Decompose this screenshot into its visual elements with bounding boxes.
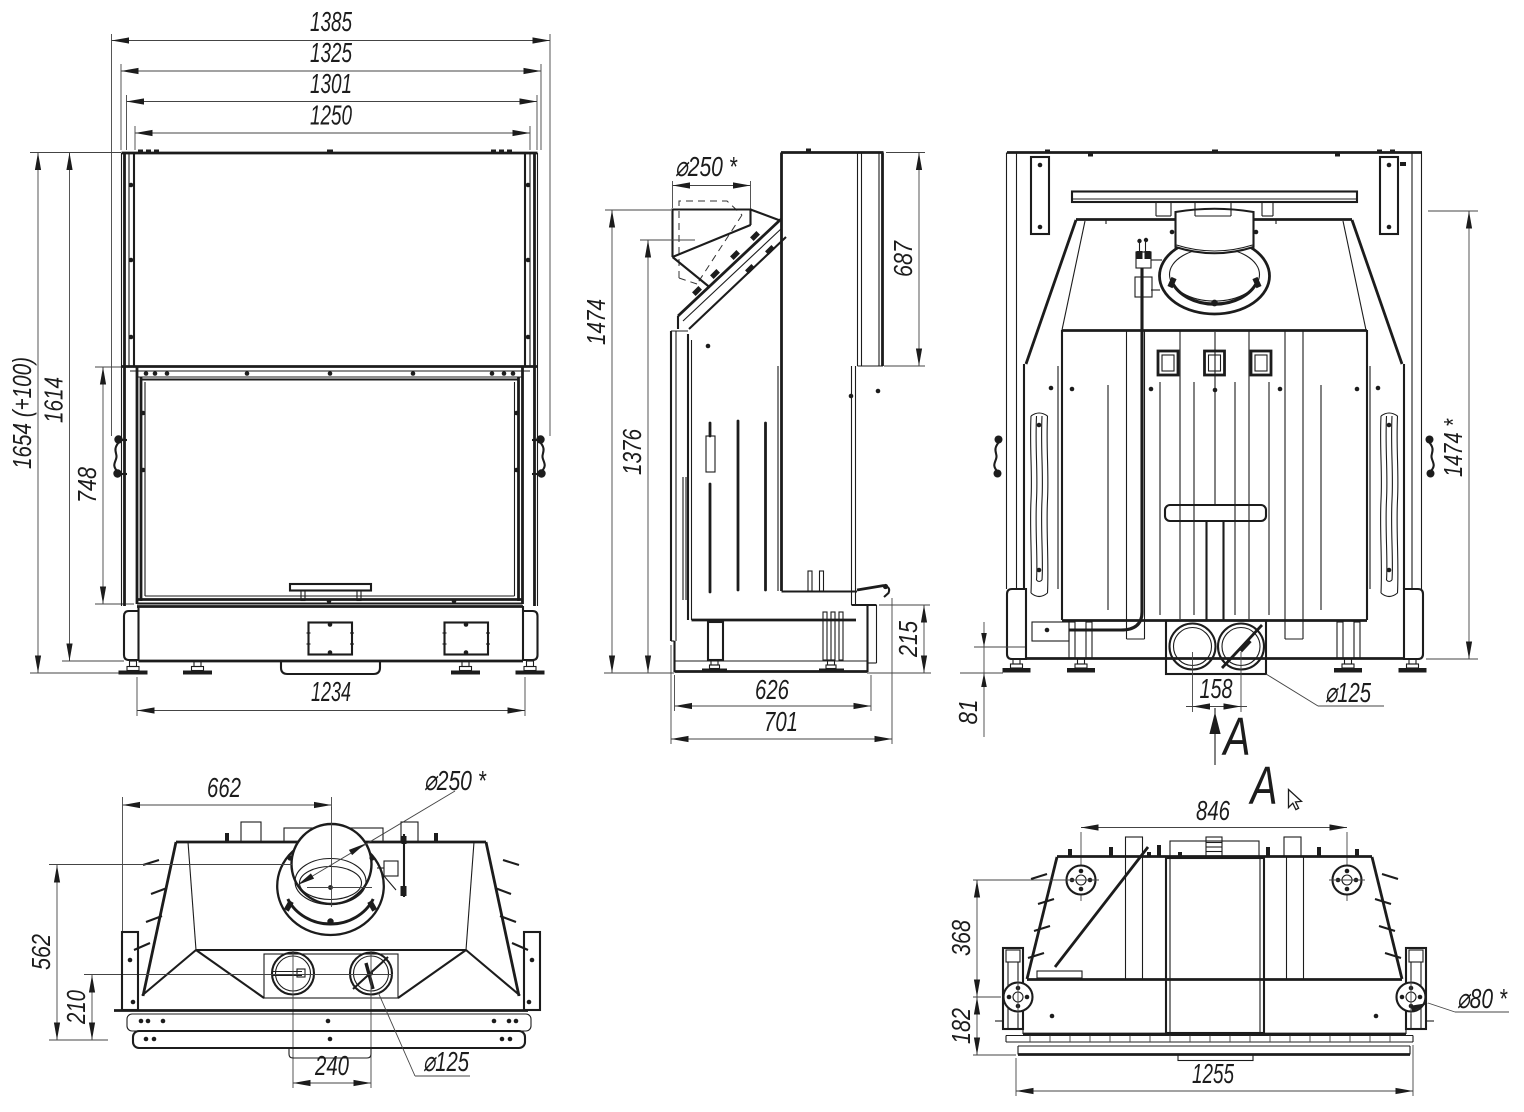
- svg-text:1255: 1255: [1192, 1058, 1234, 1089]
- svg-text:1385: 1385: [310, 6, 352, 37]
- svg-text:⌀125: ⌀125: [423, 1046, 469, 1077]
- svg-text:662: 662: [207, 772, 241, 803]
- svg-text:701: 701: [764, 706, 798, 737]
- svg-text:748: 748: [72, 467, 102, 503]
- svg-text:1250: 1250: [310, 100, 352, 131]
- svg-text:1301: 1301: [310, 68, 352, 99]
- svg-text:1614: 1614: [39, 377, 69, 423]
- svg-text:626: 626: [755, 674, 789, 705]
- svg-text:158: 158: [1200, 673, 1233, 704]
- svg-text:846: 846: [1196, 795, 1230, 826]
- svg-text:562: 562: [26, 934, 56, 970]
- svg-text:182: 182: [946, 1008, 976, 1044]
- svg-text:215: 215: [893, 621, 923, 658]
- svg-text:1474: 1474: [581, 299, 611, 345]
- svg-text:1325: 1325: [310, 37, 352, 68]
- svg-text:687: 687: [888, 240, 918, 277]
- svg-text:210: 210: [61, 990, 91, 1025]
- svg-text:⌀250 *: ⌀250 *: [424, 765, 487, 796]
- svg-text:1654 (+100): 1654 (+100): [7, 357, 37, 469]
- svg-text:240: 240: [314, 1050, 349, 1081]
- svg-text:1474 *: 1474 *: [1438, 418, 1468, 477]
- svg-text:A: A: [1221, 707, 1250, 767]
- svg-text:⌀250 *: ⌀250 *: [675, 151, 738, 182]
- svg-text:368: 368: [946, 920, 976, 956]
- svg-text:⌀80 *: ⌀80 *: [1457, 983, 1508, 1014]
- svg-text:1376: 1376: [617, 429, 647, 475]
- svg-text:81: 81: [953, 700, 983, 725]
- svg-text:1234: 1234: [311, 676, 351, 707]
- svg-text:⌀125: ⌀125: [1325, 677, 1371, 708]
- svg-text:A: A: [1248, 756, 1277, 816]
